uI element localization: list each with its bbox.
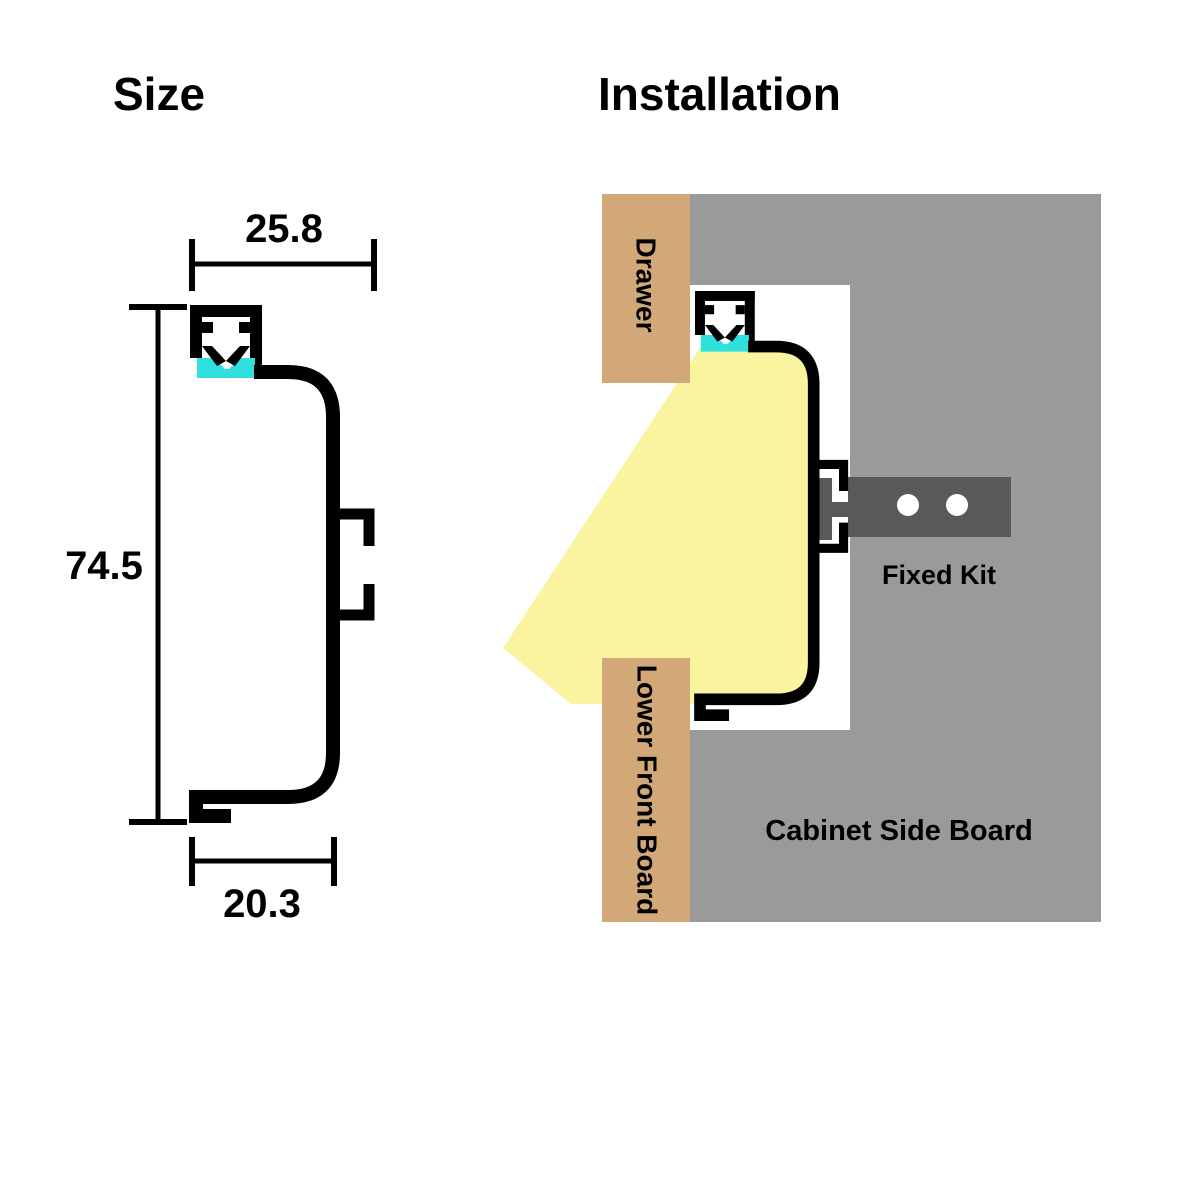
size-profile: [190, 305, 369, 816]
cabinet-side-board-label: Cabinet Side Board: [765, 815, 1033, 847]
dim-bottom-width: 20.3: [192, 837, 334, 926]
fixed-kit-plate: [848, 477, 1011, 537]
drawer-label: Drawer: [631, 238, 662, 333]
dim-bottom-value: 20.3: [223, 882, 301, 926]
size-title: Size: [113, 68, 205, 120]
dim-top-value: 25.8: [245, 207, 323, 251]
size-panel: Size 25.8 74.5 20.3: [65, 68, 374, 926]
installation-panel: Installation Drawer Lower Front Board Fi…: [503, 68, 1101, 922]
lower-front-board-label: Lower Front Board: [632, 665, 663, 915]
screw-hole-left: [897, 494, 919, 516]
fixed-kit-label: Fixed Kit: [882, 560, 996, 590]
led-profile-diagram: Size 25.8 74.5 20.3 Installation: [0, 0, 1200, 1200]
dim-left-height: 74.5: [65, 307, 187, 822]
dim-top-width: 25.8: [192, 207, 374, 291]
dim-left-value: 74.5: [65, 544, 143, 588]
installation-title: Installation: [598, 68, 841, 120]
diagram-page: Size 25.8 74.5 20.3 Installation: [0, 0, 1200, 1200]
screw-hole-right: [946, 494, 968, 516]
